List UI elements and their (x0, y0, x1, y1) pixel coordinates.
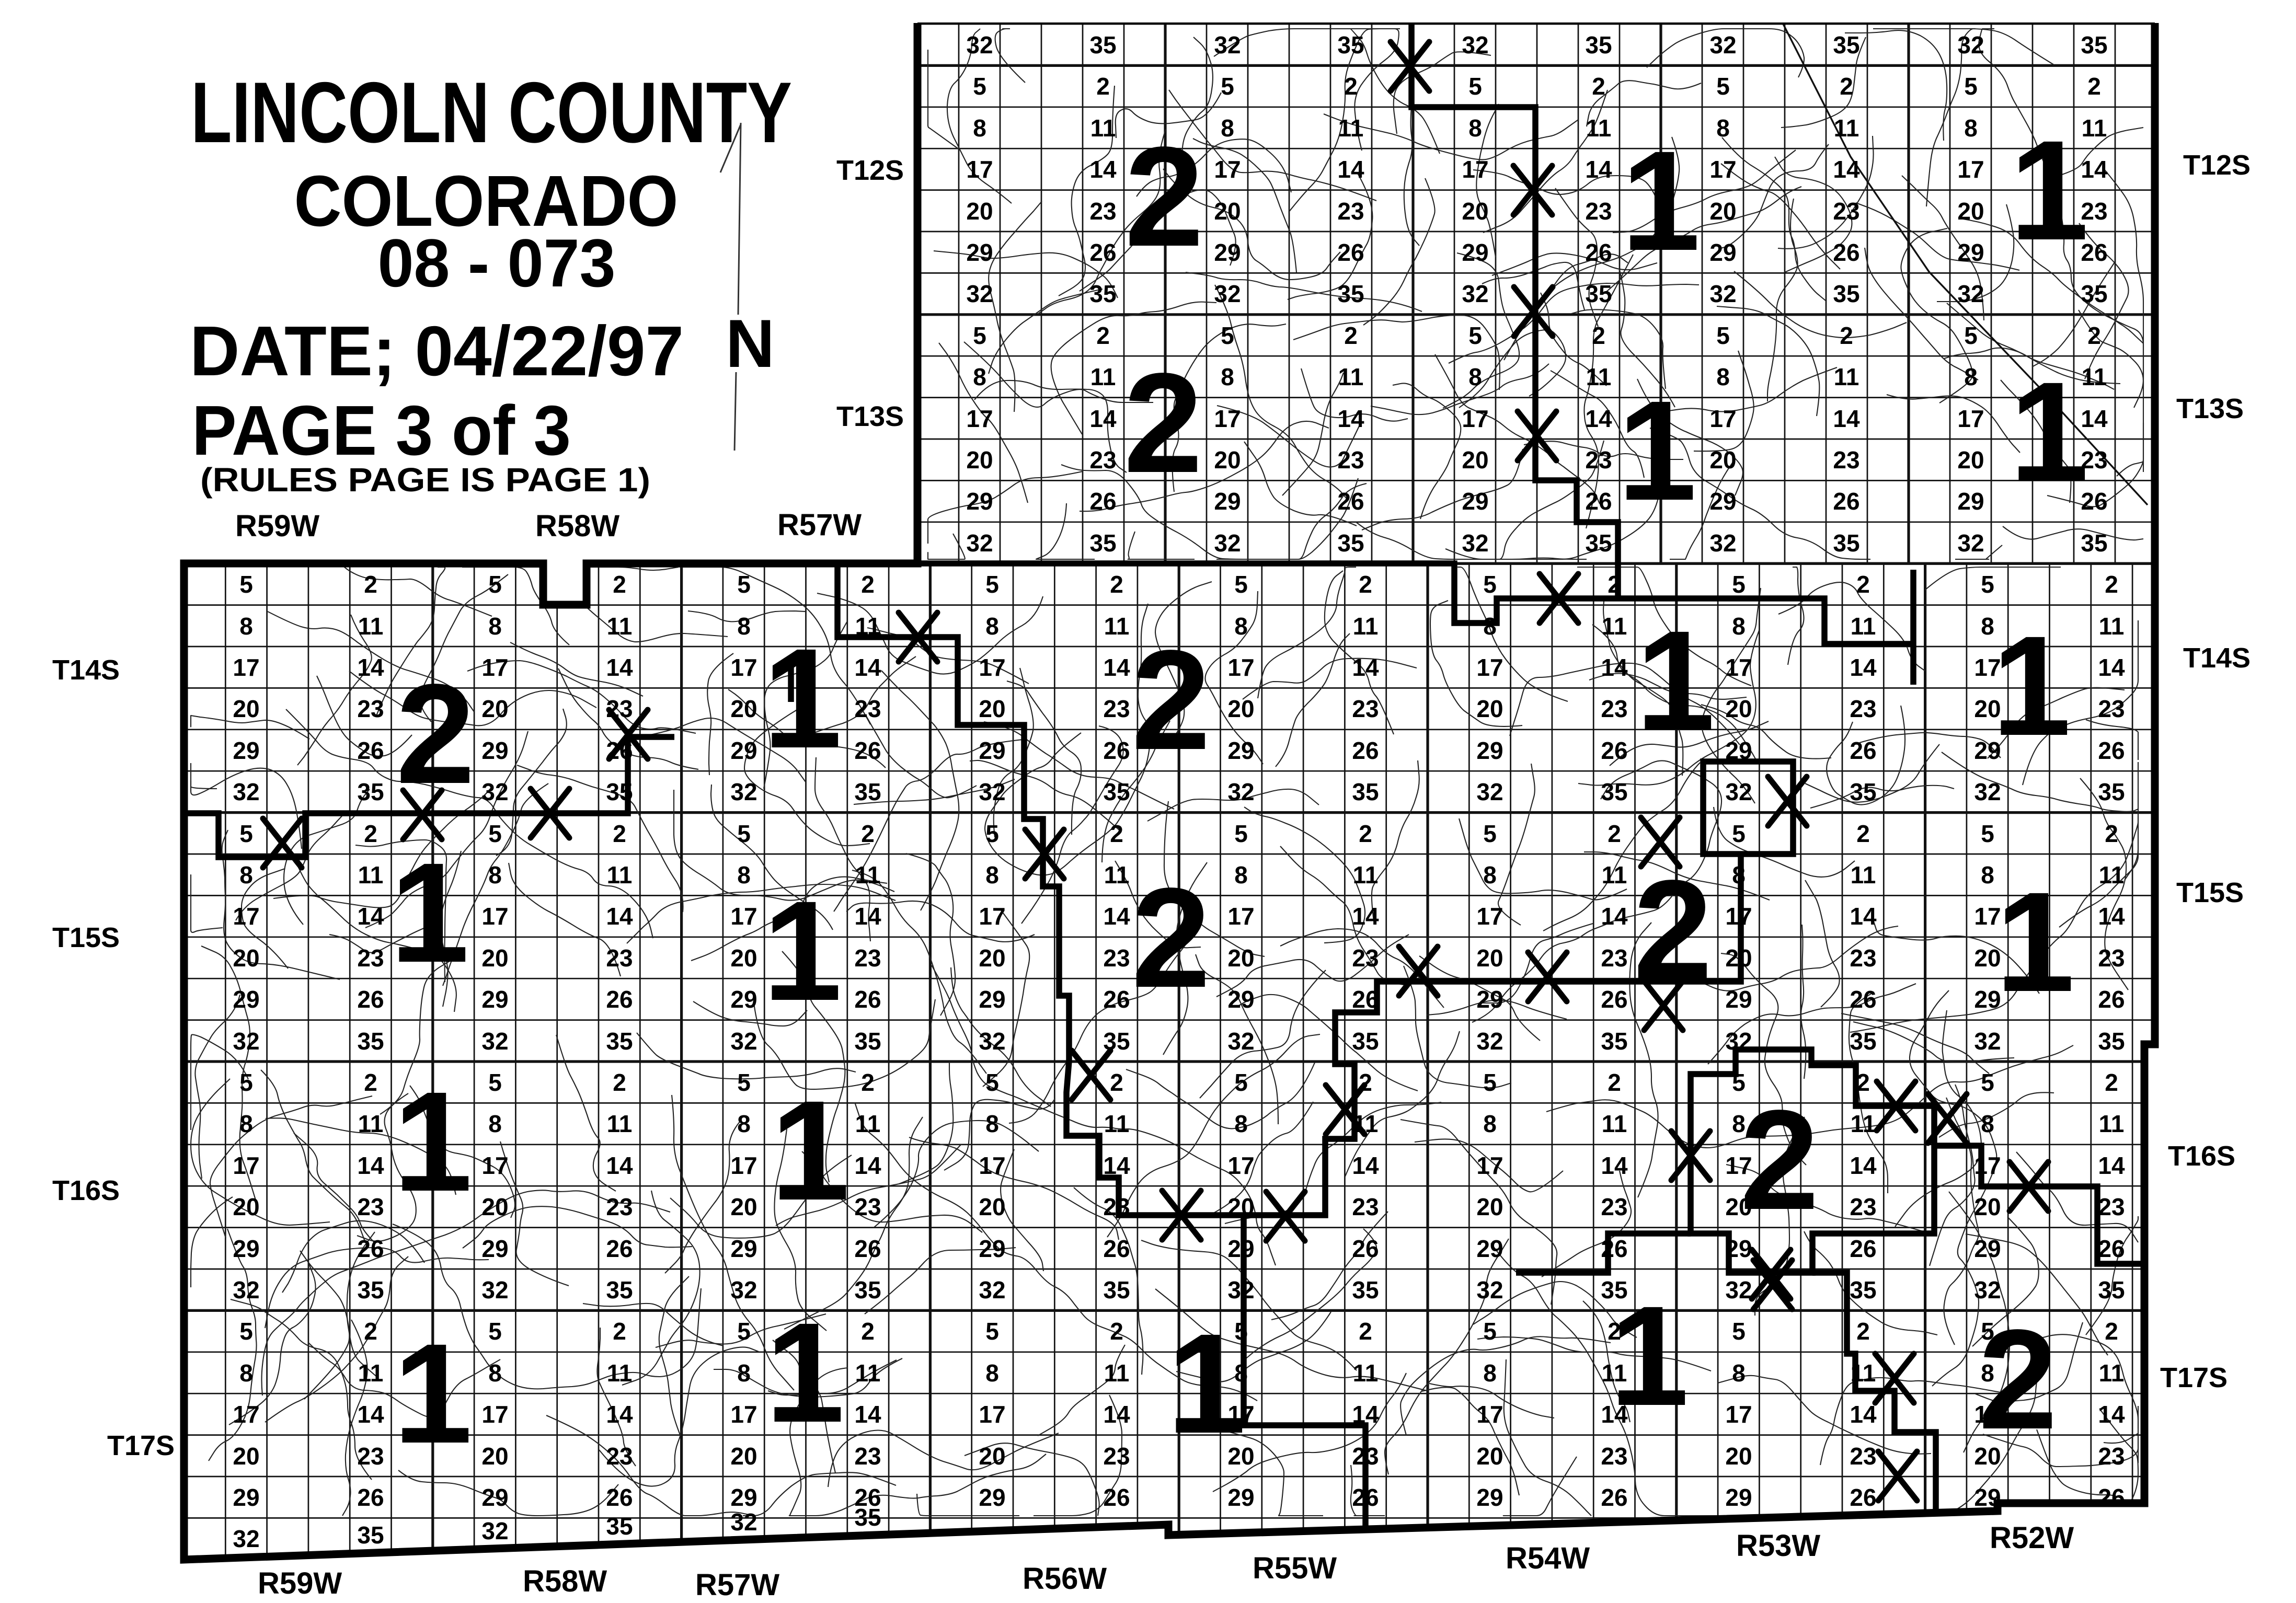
svg-text:23: 23 (1089, 198, 1116, 225)
svg-text:5: 5 (985, 1069, 999, 1096)
svg-text:23: 23 (606, 944, 633, 972)
svg-text:29: 29 (730, 737, 757, 764)
svg-text:35: 35 (606, 1513, 633, 1540)
svg-text:14: 14 (2098, 1152, 2125, 1179)
svg-text:29: 29 (233, 1235, 259, 1262)
svg-text:32: 32 (233, 778, 259, 805)
svg-text:35: 35 (1585, 31, 1612, 59)
svg-text:8: 8 (1483, 1359, 1497, 1387)
svg-text:8: 8 (1234, 1110, 1248, 1137)
svg-text:23: 23 (2098, 1193, 2125, 1220)
svg-text:2: 2 (1344, 73, 1358, 100)
svg-text:11: 11 (1586, 363, 1612, 390)
svg-text:14: 14 (1850, 1152, 1877, 1179)
svg-text:35: 35 (1089, 280, 1116, 307)
svg-text:17: 17 (233, 903, 259, 930)
svg-text:35: 35 (854, 778, 881, 805)
svg-text:14: 14 (1337, 405, 1364, 432)
svg-text:14: 14 (1601, 903, 1628, 930)
svg-text:2: 2 (1131, 620, 1210, 779)
svg-text:35: 35 (1352, 778, 1379, 805)
svg-text:11: 11 (1090, 114, 1116, 142)
svg-text:11: 11 (1104, 1110, 1130, 1137)
svg-text:14: 14 (854, 1152, 881, 1179)
svg-text:17: 17 (979, 1401, 1005, 1428)
svg-text:32: 32 (1974, 1028, 2001, 1055)
svg-text:2: 2 (2105, 571, 2118, 598)
svg-text:14: 14 (1833, 405, 1860, 432)
svg-text:2: 2 (1110, 571, 1123, 598)
svg-text:8: 8 (973, 114, 986, 142)
svg-text:23: 23 (1352, 695, 1379, 722)
svg-text:14: 14 (1585, 156, 1612, 183)
svg-text:14: 14 (2098, 654, 2125, 681)
svg-text:20: 20 (481, 695, 508, 722)
svg-text:1: 1 (393, 1314, 472, 1473)
svg-text:2: 2 (1359, 571, 1372, 598)
svg-text:8: 8 (1716, 363, 1730, 390)
svg-text:29: 29 (1974, 1235, 2001, 1262)
svg-text:11: 11 (607, 861, 633, 889)
svg-text:R58W: R58W (523, 1564, 607, 1598)
svg-text:8: 8 (488, 1359, 502, 1387)
svg-text:32: 32 (1725, 778, 1752, 805)
svg-text:35: 35 (357, 1028, 384, 1055)
svg-text:17: 17 (979, 903, 1005, 930)
svg-text:32: 32 (730, 1508, 757, 1536)
svg-text:8: 8 (985, 613, 999, 640)
svg-text:29: 29 (979, 986, 1005, 1013)
svg-text:08 - 073: 08 - 073 (378, 225, 616, 301)
svg-text:23: 23 (1601, 695, 1627, 722)
svg-text:32: 32 (1462, 280, 1488, 307)
svg-text:29: 29 (1462, 488, 1488, 515)
svg-text:1: 1 (765, 1293, 844, 1452)
svg-text:32: 32 (1709, 280, 1736, 307)
svg-text:14: 14 (1601, 1152, 1628, 1179)
svg-text:23: 23 (357, 695, 384, 722)
svg-text:35: 35 (357, 1521, 384, 1549)
svg-text:26: 26 (606, 1235, 633, 1262)
svg-text:2: 2 (613, 820, 626, 847)
svg-text:32: 32 (730, 1028, 757, 1055)
svg-text:26: 26 (357, 737, 384, 764)
svg-text:11: 11 (607, 1359, 633, 1387)
svg-text:8: 8 (1981, 861, 1994, 889)
svg-text:17: 17 (1227, 903, 1254, 930)
svg-text:20: 20 (233, 695, 259, 722)
svg-text:20: 20 (1462, 198, 1488, 225)
svg-text:17: 17 (1957, 405, 1984, 432)
svg-text:20: 20 (481, 944, 508, 972)
svg-text:23: 23 (1601, 1443, 1627, 1470)
svg-text:23: 23 (606, 1443, 633, 1470)
svg-text:R55W: R55W (1253, 1551, 1337, 1585)
svg-text:5: 5 (1468, 73, 1482, 100)
svg-text:32: 32 (1957, 529, 1984, 557)
svg-text:5: 5 (1483, 571, 1497, 598)
svg-text:32: 32 (233, 1276, 259, 1304)
svg-text:26: 26 (2098, 737, 2125, 764)
svg-text:8: 8 (973, 363, 986, 390)
svg-text:14: 14 (357, 1401, 384, 1428)
svg-text:5: 5 (1483, 1318, 1497, 1345)
svg-text:17: 17 (1725, 1401, 1752, 1428)
svg-text:26: 26 (1337, 488, 1364, 515)
svg-text:8: 8 (488, 613, 502, 640)
svg-text:8: 8 (1483, 861, 1497, 889)
svg-text:23: 23 (1585, 446, 1612, 474)
svg-text:23: 23 (1089, 446, 1116, 474)
svg-text:PAGE 3 of 3: PAGE 3 of 3 (192, 391, 571, 470)
svg-text:8: 8 (737, 861, 751, 889)
svg-text:26: 26 (854, 737, 881, 764)
svg-text:R57W: R57W (695, 1568, 779, 1602)
svg-text:T16S: T16S (52, 1175, 120, 1206)
svg-text:32: 32 (1462, 31, 1488, 59)
svg-text:17: 17 (979, 654, 1005, 681)
svg-text:17: 17 (233, 1401, 259, 1428)
svg-text:35: 35 (1833, 31, 1859, 59)
svg-text:5: 5 (239, 1318, 253, 1345)
svg-text:8: 8 (985, 1110, 999, 1137)
svg-text:17: 17 (233, 654, 259, 681)
svg-text:26: 26 (1103, 737, 1130, 764)
svg-text:2: 2 (1740, 1080, 1819, 1239)
svg-text:29: 29 (233, 1484, 259, 1511)
svg-text:32: 32 (966, 280, 993, 307)
svg-text:23: 23 (1352, 1193, 1379, 1220)
svg-text:26: 26 (1089, 239, 1116, 266)
svg-text:32: 32 (481, 1028, 508, 1055)
svg-text:17: 17 (730, 654, 757, 681)
svg-text:20: 20 (730, 1443, 757, 1470)
svg-text:26: 26 (606, 986, 633, 1013)
svg-text:5: 5 (1221, 322, 1234, 349)
svg-text:5: 5 (737, 1318, 751, 1345)
svg-text:2: 2 (1856, 820, 1870, 847)
svg-text:8: 8 (985, 1359, 999, 1387)
svg-text:32: 32 (1476, 1276, 1503, 1304)
svg-text:11: 11 (1586, 114, 1612, 142)
svg-text:5: 5 (1483, 820, 1497, 847)
svg-text:29: 29 (1725, 986, 1752, 1013)
svg-text:35: 35 (2081, 31, 2107, 59)
svg-text:29: 29 (1476, 1484, 1503, 1511)
svg-text:1: 1 (771, 1071, 849, 1230)
svg-text:29: 29 (1709, 488, 1736, 515)
svg-text:1: 1 (763, 619, 842, 778)
svg-text:26: 26 (854, 986, 881, 1013)
svg-text:32: 32 (1974, 778, 2001, 805)
svg-text:35: 35 (854, 1028, 881, 1055)
svg-text:29: 29 (1462, 239, 1488, 266)
svg-text:5: 5 (239, 1069, 253, 1096)
svg-text:8: 8 (1732, 613, 1746, 640)
svg-text:20: 20 (730, 1193, 757, 1220)
svg-text:23: 23 (1601, 944, 1627, 972)
svg-text:5: 5 (1234, 571, 1248, 598)
svg-text:11: 11 (2099, 1110, 2125, 1137)
svg-text:2: 2 (364, 1318, 377, 1345)
svg-text:14: 14 (1850, 1401, 1877, 1428)
svg-text:17: 17 (1476, 1152, 1503, 1179)
svg-text:11: 11 (855, 861, 881, 889)
svg-text:11: 11 (2099, 1359, 2125, 1387)
svg-text:29: 29 (1725, 1484, 1752, 1511)
svg-text:23: 23 (1585, 198, 1612, 225)
svg-text:23: 23 (357, 1193, 384, 1220)
svg-text:23: 23 (2098, 944, 2125, 972)
svg-text:20: 20 (1476, 1193, 1503, 1220)
svg-text:5: 5 (985, 571, 999, 598)
svg-text:32: 32 (1462, 529, 1488, 557)
svg-text:32: 32 (730, 778, 757, 805)
svg-text:35: 35 (1601, 778, 1627, 805)
svg-text:5: 5 (1716, 73, 1730, 100)
svg-text:11: 11 (1353, 613, 1379, 640)
svg-text:35: 35 (357, 1276, 384, 1304)
svg-text:11: 11 (1338, 114, 1364, 142)
svg-text:1: 1 (1621, 121, 1700, 280)
svg-text:17: 17 (1227, 1152, 1254, 1179)
svg-text:R54W: R54W (1506, 1541, 1590, 1575)
svg-text:2: 2 (1344, 322, 1358, 349)
svg-text:2: 2 (861, 1318, 875, 1345)
svg-text:R58W: R58W (535, 509, 619, 543)
svg-text:1: 1 (1992, 606, 2071, 765)
svg-text:29: 29 (1957, 239, 1984, 266)
svg-text:29: 29 (966, 488, 993, 515)
svg-text:1: 1 (393, 1062, 472, 1221)
svg-text:5: 5 (1483, 1069, 1497, 1096)
svg-text:2: 2 (1856, 1318, 1870, 1345)
svg-text:20: 20 (1974, 1193, 2001, 1220)
svg-text:23: 23 (1601, 1193, 1627, 1220)
svg-text:35: 35 (2081, 280, 2107, 307)
svg-text:2: 2 (1110, 1318, 1123, 1345)
svg-text:35: 35 (854, 1276, 881, 1304)
svg-text:26: 26 (357, 986, 384, 1013)
svg-text:20: 20 (966, 198, 993, 225)
svg-text:1: 1 (1167, 1304, 1246, 1463)
svg-text:2: 2 (1131, 858, 1210, 1017)
svg-text:26: 26 (1601, 1235, 1627, 1262)
svg-text:32: 32 (979, 1028, 1005, 1055)
svg-text:5: 5 (488, 820, 502, 847)
svg-text:29: 29 (730, 1484, 757, 1511)
svg-text:14: 14 (606, 903, 633, 930)
svg-text:20: 20 (730, 695, 757, 722)
svg-text:LINCOLN COUNTY: LINCOLN COUNTY (191, 64, 792, 160)
svg-text:17: 17 (1227, 654, 1254, 681)
svg-text:26: 26 (1850, 737, 1876, 764)
svg-text:8: 8 (239, 613, 253, 640)
svg-text:14: 14 (1103, 903, 1130, 930)
svg-text:11: 11 (1104, 861, 1130, 889)
svg-text:26: 26 (1585, 488, 1612, 515)
svg-text:26: 26 (1601, 1484, 1627, 1511)
svg-text:23: 23 (1850, 1443, 1876, 1470)
svg-text:20: 20 (1214, 198, 1241, 225)
svg-text:14: 14 (357, 903, 384, 930)
svg-text:20: 20 (979, 695, 1005, 722)
svg-text:20: 20 (1462, 446, 1488, 474)
svg-text:8: 8 (1964, 114, 1978, 142)
svg-text:17: 17 (1725, 654, 1752, 681)
svg-text:11: 11 (1851, 861, 1876, 889)
svg-text:23: 23 (854, 1193, 881, 1220)
svg-text:T16S: T16S (2168, 1140, 2235, 1172)
svg-text:14: 14 (1850, 903, 1877, 930)
svg-text:14: 14 (606, 1152, 633, 1179)
svg-text:20: 20 (1725, 1443, 1752, 1470)
svg-text:26: 26 (1833, 488, 1859, 515)
svg-text:11: 11 (1602, 1110, 1627, 1137)
svg-text:8: 8 (1732, 1359, 1746, 1387)
svg-text:8: 8 (239, 1110, 253, 1137)
svg-text:35: 35 (1103, 1276, 1130, 1304)
svg-text:11: 11 (855, 1359, 881, 1387)
svg-text:26: 26 (1585, 239, 1612, 266)
svg-text:23: 23 (1850, 944, 1876, 972)
svg-text:11: 11 (1834, 363, 1859, 390)
svg-text:1: 1 (390, 833, 469, 992)
svg-text:35: 35 (2098, 778, 2125, 805)
svg-text:14: 14 (1352, 1152, 1379, 1179)
svg-text:11: 11 (1353, 1359, 1379, 1387)
svg-text:32: 32 (1709, 31, 1736, 59)
svg-text:20: 20 (233, 1193, 259, 1220)
svg-text:35: 35 (1352, 1028, 1379, 1055)
svg-text:2: 2 (1124, 117, 1203, 276)
svg-text:23: 23 (1103, 944, 1130, 972)
svg-text:2: 2 (1856, 571, 1870, 598)
svg-text:14: 14 (1337, 156, 1364, 183)
svg-text:11: 11 (2099, 861, 2125, 889)
svg-text:20: 20 (1214, 446, 1241, 474)
svg-text:8: 8 (737, 613, 751, 640)
svg-text:26: 26 (854, 1235, 881, 1262)
svg-text:23: 23 (1850, 1193, 1876, 1220)
svg-text:2: 2 (1359, 820, 1372, 847)
svg-text:R56W: R56W (1023, 1562, 1107, 1596)
svg-text:26: 26 (1601, 986, 1627, 1013)
svg-text:26: 26 (1833, 239, 1859, 266)
svg-text:R59W: R59W (258, 1566, 342, 1600)
svg-text:35: 35 (1352, 1276, 1379, 1304)
svg-text:2: 2 (613, 1318, 626, 1345)
svg-text:32: 32 (1214, 529, 1241, 557)
svg-text:1: 1 (1610, 1276, 1689, 1435)
svg-text:2: 2 (1123, 343, 1202, 502)
svg-text:14: 14 (1089, 156, 1117, 183)
svg-text:5: 5 (1981, 571, 1994, 598)
svg-text:29: 29 (481, 1235, 508, 1262)
svg-text:29: 29 (1957, 488, 1984, 515)
svg-text:23: 23 (854, 944, 881, 972)
svg-text:5: 5 (1468, 322, 1482, 349)
svg-text:11: 11 (1104, 1359, 1130, 1387)
svg-text:23: 23 (357, 1443, 384, 1470)
svg-text:32: 32 (730, 1276, 757, 1304)
svg-text:20: 20 (1476, 695, 1503, 722)
svg-text:35: 35 (1601, 1028, 1627, 1055)
svg-text:17: 17 (1709, 405, 1736, 432)
svg-text:32: 32 (233, 1028, 259, 1055)
svg-text:29: 29 (481, 986, 508, 1013)
svg-text:26: 26 (1850, 1484, 1876, 1511)
svg-text:2: 2 (364, 571, 377, 598)
svg-text:17: 17 (481, 654, 508, 681)
svg-text:32: 32 (481, 1517, 508, 1544)
svg-text:26: 26 (1103, 1235, 1130, 1262)
svg-text:11: 11 (2099, 613, 2125, 640)
svg-text:20: 20 (1957, 446, 1984, 474)
svg-text:35: 35 (1833, 529, 1859, 557)
svg-text:26: 26 (1089, 488, 1116, 515)
svg-text:2: 2 (1608, 820, 1621, 847)
svg-text:5: 5 (737, 820, 751, 847)
svg-text:32: 32 (1476, 778, 1503, 805)
svg-text:35: 35 (1089, 529, 1116, 557)
svg-text:11: 11 (1851, 1110, 1876, 1137)
svg-text:14: 14 (1103, 654, 1130, 681)
svg-text:8: 8 (239, 1359, 253, 1387)
svg-text:14: 14 (1352, 903, 1379, 930)
svg-text:11: 11 (1602, 613, 1627, 640)
svg-text:R52W: R52W (1990, 1521, 2074, 1555)
svg-text:20: 20 (1957, 198, 1984, 225)
svg-text:29: 29 (979, 1484, 1005, 1511)
svg-text:5: 5 (973, 322, 986, 349)
svg-text:8: 8 (1716, 114, 1730, 142)
svg-text:14: 14 (854, 654, 881, 681)
svg-text:17: 17 (481, 1401, 508, 1428)
svg-text:5: 5 (488, 571, 502, 598)
svg-text:5: 5 (1732, 1318, 1746, 1345)
svg-text:5: 5 (1234, 1069, 1248, 1096)
svg-text:11: 11 (607, 1110, 633, 1137)
svg-text:14: 14 (1850, 654, 1877, 681)
svg-text:11: 11 (1851, 613, 1876, 640)
svg-text:23: 23 (1337, 198, 1364, 225)
svg-text:23: 23 (2098, 1443, 2125, 1470)
svg-text:17: 17 (979, 1152, 1005, 1179)
svg-text:T15S: T15S (52, 922, 120, 953)
svg-text:2: 2 (2087, 73, 2101, 100)
svg-text:14: 14 (606, 1401, 633, 1428)
svg-text:26: 26 (357, 1235, 384, 1262)
svg-text:17: 17 (966, 405, 993, 432)
svg-text:2: 2 (613, 571, 626, 598)
svg-text:2: 2 (861, 571, 875, 598)
svg-text:2: 2 (1359, 1318, 1372, 1345)
svg-text:29: 29 (1476, 737, 1503, 764)
svg-text:5: 5 (1716, 322, 1730, 349)
svg-text:23: 23 (1850, 695, 1876, 722)
svg-text:32: 32 (1214, 31, 1241, 59)
svg-text:2: 2 (1096, 73, 1110, 100)
svg-text:5: 5 (985, 820, 999, 847)
svg-text:26: 26 (1850, 1235, 1876, 1262)
svg-text:35: 35 (854, 1504, 881, 1531)
svg-text:8: 8 (1468, 363, 1482, 390)
svg-text:1: 1 (1995, 862, 2074, 1021)
svg-text:32: 32 (481, 1276, 508, 1304)
svg-text:8: 8 (1964, 363, 1978, 390)
svg-text:20: 20 (233, 1443, 259, 1470)
